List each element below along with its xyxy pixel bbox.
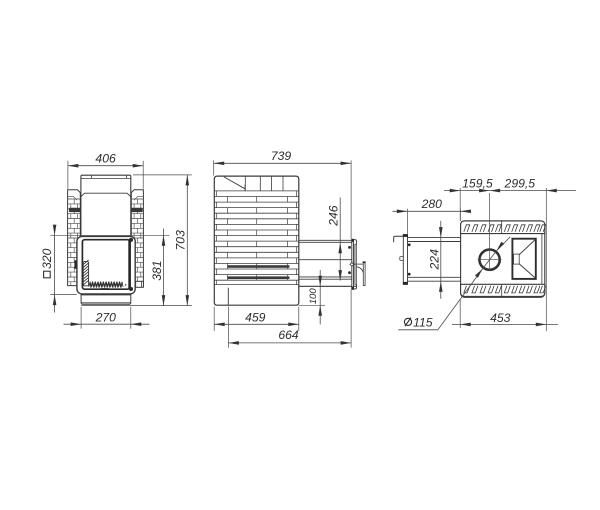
svg-text:664: 664 <box>278 328 299 342</box>
svg-text:739: 739 <box>271 149 292 163</box>
svg-text:381: 381 <box>150 260 164 280</box>
svg-text:453: 453 <box>490 311 511 325</box>
svg-text:299,5: 299,5 <box>504 177 536 191</box>
svg-text:246: 246 <box>326 205 340 227</box>
svg-text:280: 280 <box>421 197 443 211</box>
svg-text:224: 224 <box>428 249 442 271</box>
svg-text:406: 406 <box>95 152 116 166</box>
svg-text:270: 270 <box>95 310 117 324</box>
svg-text:459: 459 <box>245 310 266 324</box>
svg-text:100: 100 <box>308 288 319 305</box>
svg-text:320: 320 <box>40 248 54 269</box>
svg-text:703: 703 <box>174 230 188 251</box>
svg-text:159,5: 159,5 <box>462 177 493 191</box>
svg-text:115: 115 <box>413 315 433 329</box>
